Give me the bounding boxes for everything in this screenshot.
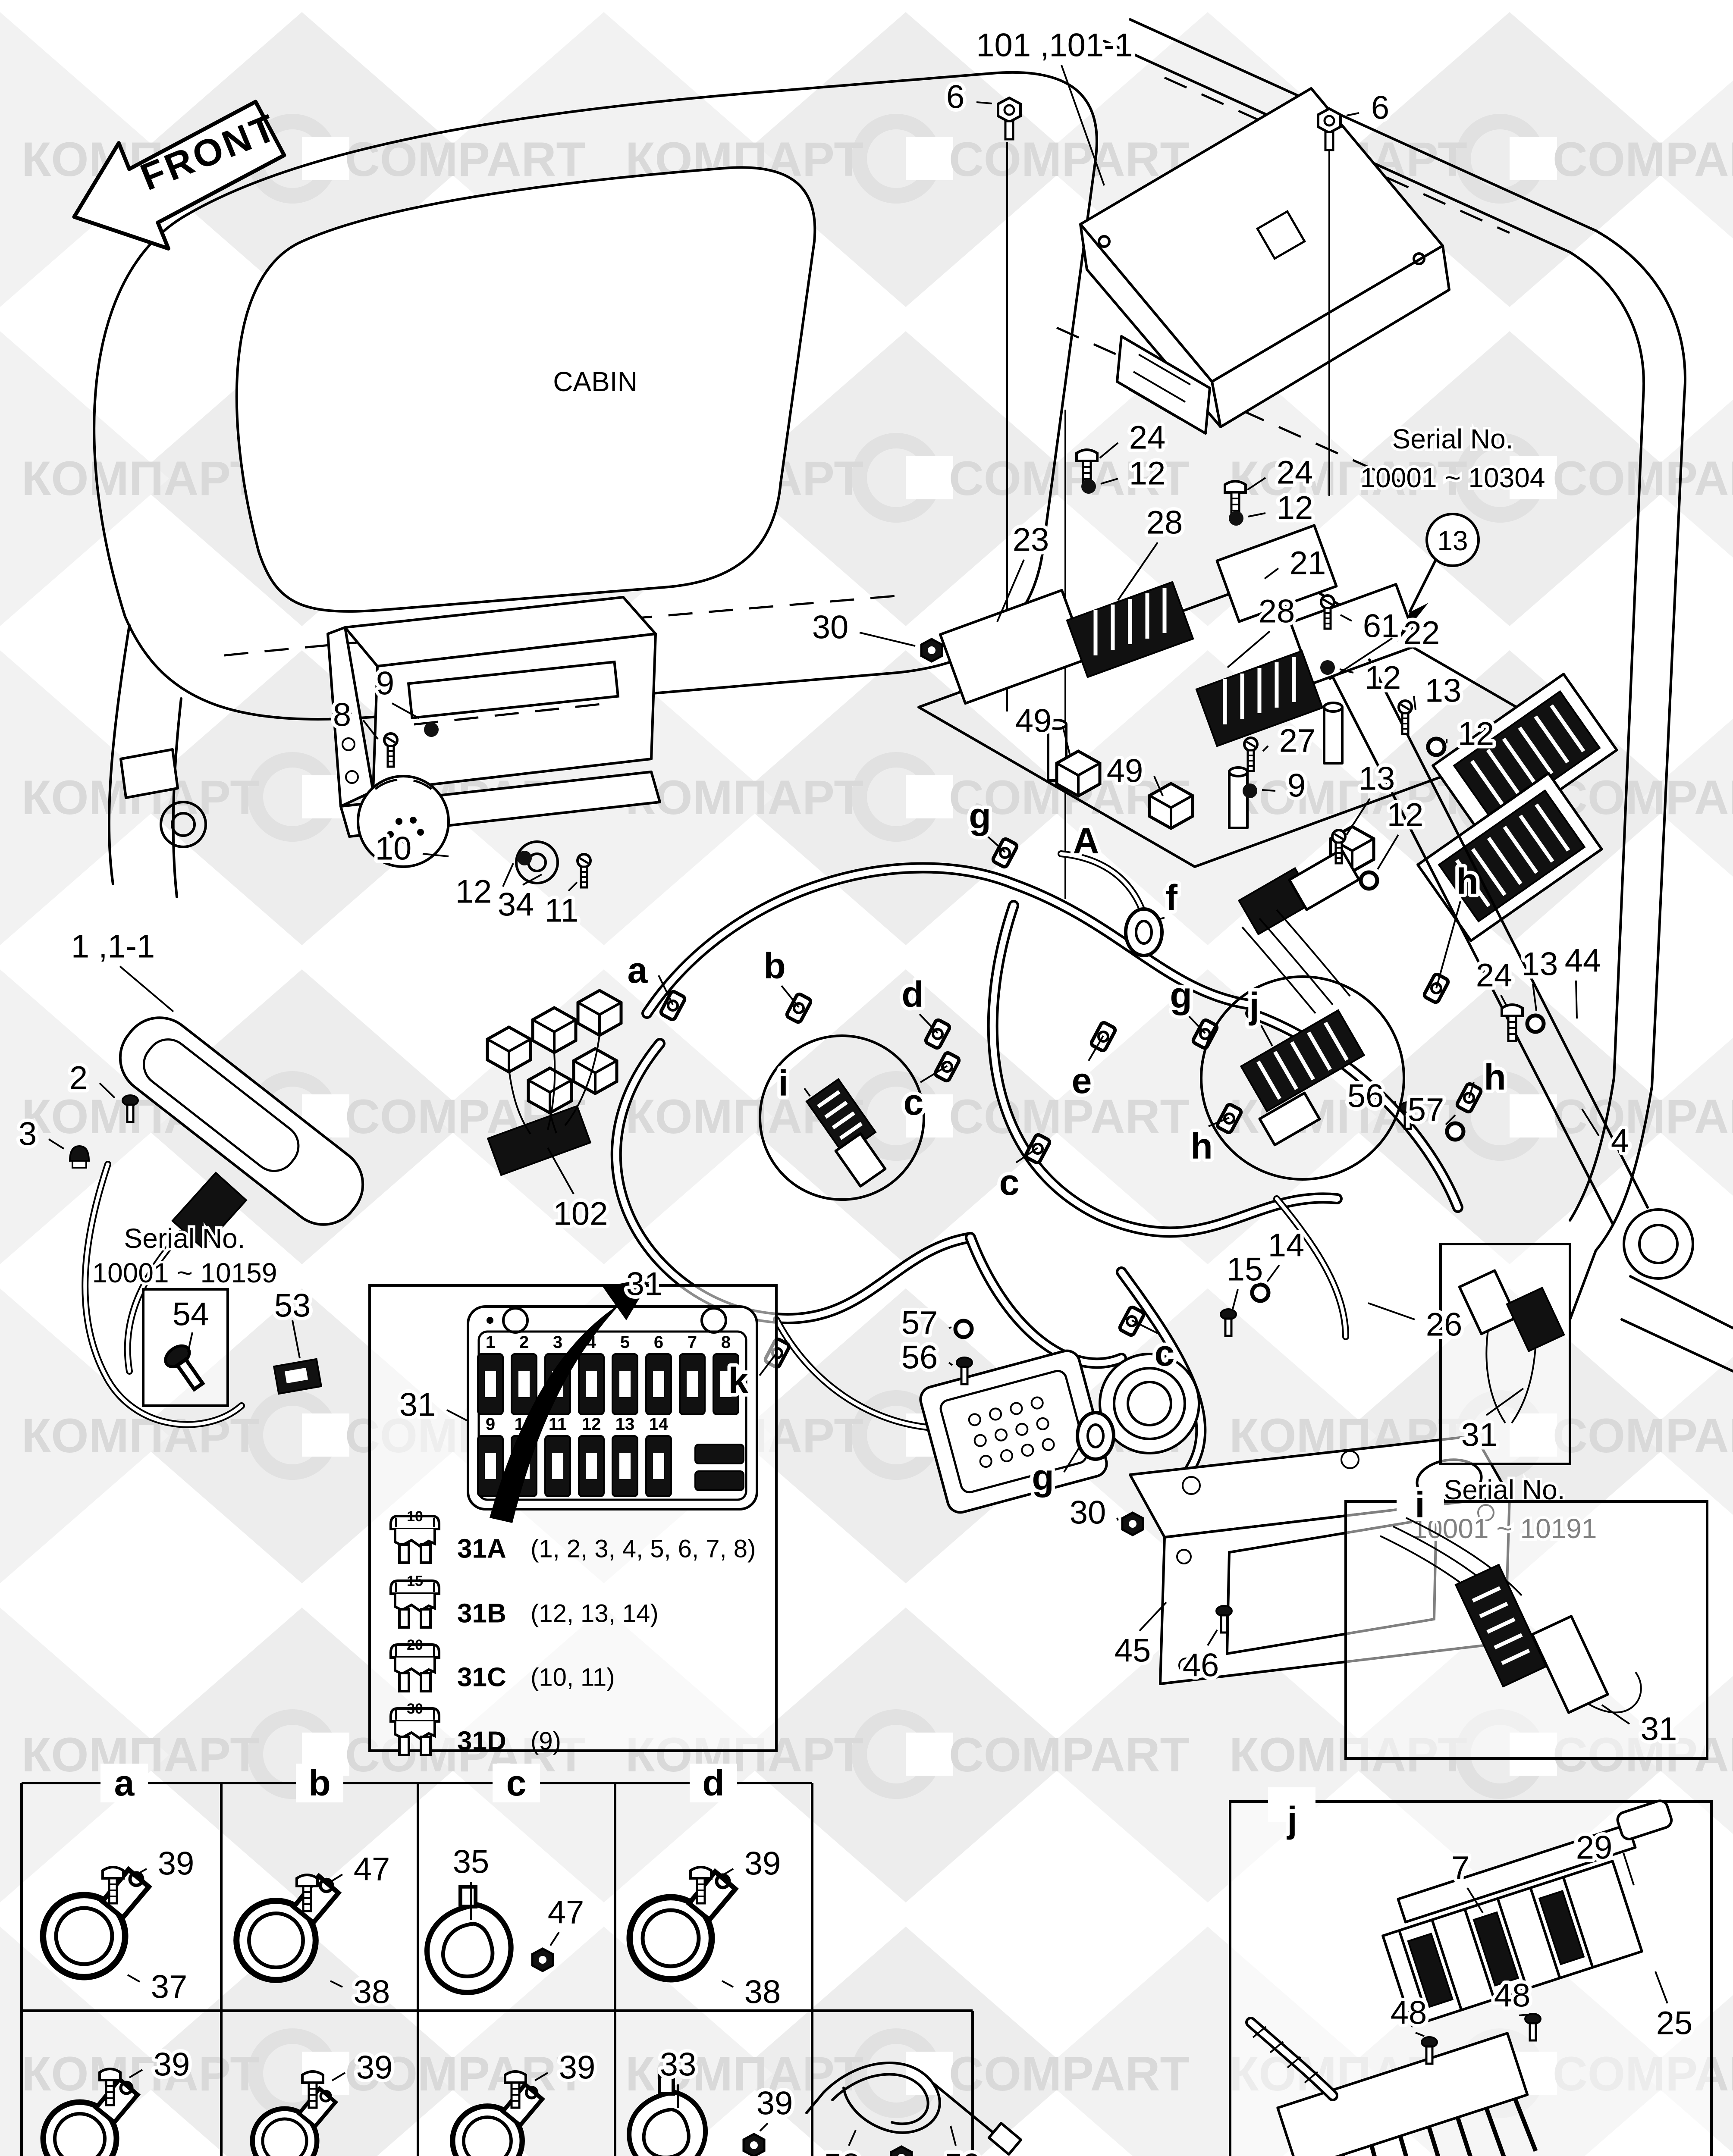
svg-text:26: 26 <box>1426 1307 1463 1343</box>
svg-text:g: g <box>1170 975 1192 1015</box>
svg-text:39: 39 <box>158 1846 195 1882</box>
fuse-slot-number: 13 <box>615 1415 635 1434</box>
part-53: 53 <box>274 1288 311 1324</box>
svg-text:h: h <box>1484 1057 1506 1097</box>
nut-icon <box>744 2134 764 2156</box>
svg-text:9: 9 <box>376 665 394 702</box>
svg-text:24: 24 <box>1277 454 1313 491</box>
svg-text:12: 12 <box>1277 490 1313 526</box>
dot-icon <box>1229 511 1243 526</box>
svg-text:A: A <box>1073 821 1099 861</box>
fuse-slot-number: 2 <box>519 1333 529 1352</box>
svg-text:b: b <box>763 946 785 986</box>
fuse-slot-number: 12 <box>582 1415 601 1434</box>
washer-icon <box>1428 739 1444 755</box>
svg-text:39: 39 <box>757 2085 793 2122</box>
svg-text:28: 28 <box>1259 593 1295 630</box>
fuse-slot-number: 8 <box>721 1333 731 1352</box>
nut-icon <box>921 639 942 661</box>
svg-text:12: 12 <box>1387 797 1424 834</box>
svg-text:39: 39 <box>559 2049 596 2086</box>
svg-text:g: g <box>969 796 991 836</box>
svg-text:101 ,101-1: 101 ,101-1 <box>976 27 1133 64</box>
svg-text:2: 2 <box>69 1060 88 1097</box>
svg-text:c: c <box>1155 1333 1175 1373</box>
svg-text:j: j <box>1286 1799 1297 1840</box>
svg-text:8: 8 <box>333 697 351 733</box>
svg-text:k: k <box>728 1360 749 1401</box>
fuse-group-circuits: (9) <box>531 1727 561 1755</box>
serial-top-badge: 13 <box>1437 525 1468 556</box>
svg-text:33: 33 <box>660 2046 697 2083</box>
svg-text:39: 39 <box>356 2049 393 2086</box>
part-54: 54 <box>173 1296 209 1333</box>
fuse-slot-number: 6 <box>654 1333 663 1352</box>
spacer-cube <box>1149 783 1193 828</box>
svg-text:12: 12 <box>1365 660 1401 696</box>
svg-text:31: 31 <box>399 1387 436 1423</box>
grid-letter-c: c <box>506 1763 527 1803</box>
svg-text:6: 6 <box>1371 90 1389 126</box>
part-31-main: 31 <box>626 1266 663 1303</box>
svg-text:29: 29 <box>1576 1830 1613 1866</box>
spacer-cube <box>1057 751 1100 796</box>
svg-text:i: i <box>778 1063 788 1103</box>
svg-text:12: 12 <box>1458 716 1494 752</box>
svg-text:d: d <box>901 974 923 1015</box>
svg-text:37: 37 <box>151 1969 188 2006</box>
fuse-slot-number: 11 <box>549 1415 567 1434</box>
grid-letter-b: b <box>308 1763 330 1803</box>
svg-text:14: 14 <box>1268 1227 1305 1264</box>
svg-text:56: 56 <box>1347 1078 1384 1115</box>
svg-text:1 ,1-1: 1 ,1-1 <box>71 928 155 965</box>
callout-j-2: j <box>1286 1799 1297 1840</box>
fuse-rating: 30 <box>407 1701 423 1717</box>
svg-text:28: 28 <box>1146 505 1183 541</box>
svg-text:11: 11 <box>545 893 579 929</box>
svg-text:31: 31 <box>1641 1711 1677 1748</box>
dot-icon <box>1320 660 1335 675</box>
svg-text:f: f <box>1165 877 1178 918</box>
svg-text:27: 27 <box>1279 723 1316 759</box>
svg-text:58: 58 <box>824 2147 860 2156</box>
svg-text:45: 45 <box>1115 1633 1151 1669</box>
svg-text:c: c <box>999 1162 1020 1203</box>
svg-text:57: 57 <box>1408 1092 1444 1128</box>
nut-icon <box>1122 1513 1143 1535</box>
svg-text:31: 31 <box>626 1266 663 1303</box>
fuse-group-code: 31D <box>457 1727 506 1756</box>
dot-icon <box>1243 783 1257 798</box>
svg-text:24: 24 <box>1129 420 1166 456</box>
svg-text:38: 38 <box>744 1974 781 2011</box>
detail-box-j <box>1230 1787 1711 2156</box>
svg-text:48: 48 <box>1391 1995 1427 2031</box>
svg-text:44: 44 <box>1565 943 1601 979</box>
dot-icon <box>1081 479 1096 494</box>
cabin-label: CABIN <box>553 366 637 397</box>
svg-text:30: 30 <box>812 609 849 646</box>
svg-text:49: 49 <box>1107 753 1143 790</box>
fuse-slot-number: 3 <box>553 1333 562 1352</box>
serial-left-range: 10001 ~ 10159 <box>92 1257 277 1288</box>
svg-text:b: b <box>308 1763 330 1803</box>
svg-text:49: 49 <box>1015 703 1052 740</box>
svg-text:i: i <box>1415 1485 1425 1525</box>
svg-text:6: 6 <box>946 79 964 116</box>
svg-text:12: 12 <box>1129 455 1166 492</box>
fuse-group-code: 31B <box>457 1599 506 1629</box>
fuse-rating: 15 <box>407 1573 423 1589</box>
svg-text:47: 47 <box>548 1894 584 1931</box>
svg-text:31: 31 <box>1461 1417 1498 1454</box>
svg-text:59: 59 <box>945 2147 981 2156</box>
fuse-slot-number: 7 <box>688 1333 697 1352</box>
svg-text:34: 34 <box>498 887 534 923</box>
dot-icon <box>517 851 532 865</box>
fuse-rating: 10 <box>407 1508 423 1525</box>
svg-text:56: 56 <box>901 1339 938 1376</box>
svg-text:13: 13 <box>1522 946 1558 983</box>
svg-text:9: 9 <box>1287 768 1306 804</box>
svg-text:10: 10 <box>375 830 412 867</box>
serial-top-title: Serial No. <box>1392 423 1513 454</box>
svg-text:23: 23 <box>1013 522 1049 558</box>
fuse-slot-number: 1 <box>486 1333 495 1352</box>
cap-icon <box>70 1146 89 1168</box>
fuse-slot-number: 9 <box>486 1415 495 1434</box>
washer-icon <box>1527 1015 1544 1032</box>
svg-text:57: 57 <box>901 1305 938 1341</box>
fuse-group-circuits: (12, 13, 14) <box>531 1600 659 1628</box>
svg-text:35: 35 <box>453 1844 490 1880</box>
fuse-slot-number: 5 <box>620 1333 630 1352</box>
fuse-group-code: 31A <box>457 1534 506 1564</box>
svg-text:h: h <box>1456 861 1478 902</box>
svg-text:g: g <box>1032 1457 1054 1498</box>
svg-text:30: 30 <box>1070 1495 1106 1531</box>
svg-text:13: 13 <box>1359 761 1395 797</box>
svg-text:c: c <box>506 1763 527 1803</box>
grid-letter-a: a <box>114 1763 135 1803</box>
svg-text:25: 25 <box>1656 2005 1693 2042</box>
dot-icon <box>424 722 439 737</box>
svg-text:h: h <box>1190 1126 1212 1166</box>
fuse-group-circuits: (10, 11) <box>531 1664 615 1692</box>
svg-text:39: 39 <box>154 2046 190 2083</box>
svg-text:13: 13 <box>1425 673 1462 709</box>
svg-text:24: 24 <box>1476 957 1513 994</box>
parts-diagram-canvas: КОМПАРТ COMPART <box>0 0 1733 2156</box>
washer-icon <box>1447 1123 1463 1140</box>
serial-left-title: Serial No. <box>124 1223 245 1254</box>
svg-text:c: c <box>904 1082 924 1122</box>
svg-text:a: a <box>628 950 648 990</box>
nut-icon <box>532 1949 553 1971</box>
svg-text:a: a <box>114 1763 135 1803</box>
svg-text:21: 21 <box>1290 545 1326 582</box>
grid-letter-d: d <box>702 1763 724 1803</box>
svg-text:15: 15 <box>1227 1251 1263 1288</box>
fuse-rating: 20 <box>407 1637 423 1653</box>
svg-text:4: 4 <box>1611 1123 1629 1159</box>
fuse-group-code: 31C <box>457 1663 506 1692</box>
svg-text:102: 102 <box>553 1196 608 1232</box>
washer-icon <box>1361 872 1377 889</box>
svg-text:46: 46 <box>1183 1647 1219 1684</box>
svg-text:12: 12 <box>455 874 492 910</box>
svg-text:7: 7 <box>1451 1850 1469 1887</box>
svg-text:22: 22 <box>1403 615 1440 652</box>
grommet-icon <box>1126 909 1162 956</box>
svg-text:d: d <box>702 1763 724 1803</box>
svg-text:3: 3 <box>19 1116 37 1153</box>
svg-text:e: e <box>1072 1060 1092 1101</box>
serial-top-range: 10001 ~ 10304 <box>1360 462 1545 493</box>
svg-text:48: 48 <box>1494 1977 1531 2014</box>
svg-text:38: 38 <box>354 1974 390 2011</box>
fuse-slot-number: 14 <box>649 1415 669 1434</box>
fuse-group-circuits: (1, 2, 3, 4, 5, 6, 7, 8) <box>531 1535 756 1563</box>
svg-text:39: 39 <box>744 1846 781 1882</box>
grommet-icon <box>1077 1413 1114 1459</box>
svg-text:61: 61 <box>1363 608 1400 645</box>
callout-i-2: i <box>1415 1485 1425 1525</box>
washer-icon <box>955 1321 972 1337</box>
svg-text:47: 47 <box>354 1851 390 1888</box>
marker-A: A <box>1073 821 1099 861</box>
svg-text:j: j <box>1248 985 1259 1026</box>
